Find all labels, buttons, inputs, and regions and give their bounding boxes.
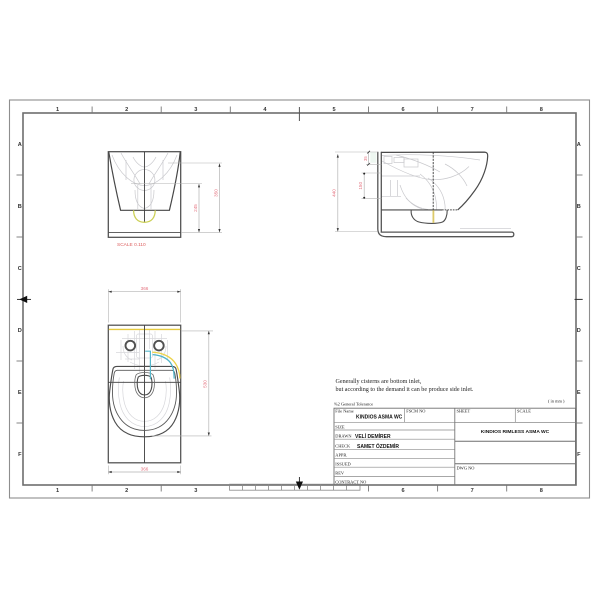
svg-text:but according to the demand i: but according to the demand it can be pr…: [336, 387, 474, 393]
svg-text:440: 440: [332, 189, 337, 197]
svg-text:7: 7: [471, 488, 474, 494]
svg-text:VELİ DEMİRER: VELİ DEMİRER: [355, 433, 391, 440]
svg-text:DWG NO: DWG NO: [457, 466, 475, 471]
svg-text:F: F: [18, 452, 22, 458]
svg-text:5: 5: [332, 107, 335, 113]
svg-text:366: 366: [141, 286, 149, 291]
svg-text:8: 8: [540, 488, 543, 494]
svg-text:C: C: [577, 266, 581, 272]
svg-text:( in mm ): ( in mm ): [548, 399, 565, 404]
svg-text:ISSUED: ISSUED: [335, 461, 350, 466]
svg-text:REV: REV: [335, 471, 345, 476]
svg-text:3: 3: [194, 107, 197, 113]
svg-text:B: B: [577, 204, 581, 210]
svg-text:%2 General Tolerance: %2 General Tolerance: [334, 402, 373, 407]
svg-text:SIZE: SIZE: [335, 424, 345, 429]
svg-text:SAMET ÖZDEMİR: SAMET ÖZDEMİR: [357, 443, 399, 450]
svg-text:B: B: [18, 204, 22, 210]
svg-text:SHEET: SHEET: [457, 409, 471, 414]
svg-text:D: D: [577, 328, 581, 334]
svg-text:SCALE 0.110: SCALE 0.110: [117, 242, 146, 248]
svg-text:CHECK: CHECK: [335, 444, 351, 449]
svg-text:E: E: [577, 390, 581, 396]
svg-text:E: E: [18, 390, 22, 396]
svg-text:2: 2: [125, 107, 128, 113]
svg-text:150: 150: [358, 182, 363, 190]
svg-text:FSCM NO: FSCM NO: [406, 409, 425, 414]
svg-text:APPR.: APPR.: [335, 452, 347, 457]
svg-text:245: 245: [193, 204, 198, 212]
svg-text:CONTRACT NO: CONTRACT NO: [335, 479, 366, 484]
svg-text:A: A: [577, 142, 581, 148]
svg-text:35: 35: [363, 156, 368, 161]
svg-text:530: 530: [203, 380, 208, 388]
svg-text:350: 350: [213, 189, 218, 197]
svg-text:8: 8: [540, 107, 543, 113]
svg-text:KINDIOS RIMLESS ASMA WC: KINDIOS RIMLESS ASMA WC: [481, 429, 550, 435]
svg-text:C: C: [18, 266, 22, 272]
svg-text:3: 3: [194, 488, 197, 494]
svg-text:2: 2: [125, 488, 128, 494]
svg-text:7: 7: [471, 107, 474, 113]
svg-text:F: F: [577, 452, 581, 458]
svg-text:6: 6: [402, 488, 405, 494]
svg-text:6: 6: [402, 107, 405, 113]
svg-text:1: 1: [56, 107, 59, 113]
svg-text:KINDIOS ASMA WC: KINDIOS ASMA WC: [356, 415, 403, 421]
svg-text:File Name: File Name: [335, 409, 353, 414]
svg-text:A: A: [18, 142, 22, 148]
svg-text:366: 366: [141, 467, 149, 472]
svg-text:DRAWN: DRAWN: [335, 433, 352, 438]
svg-text:Generally cisterns are bottom: Generally cisterns are bottom inlet,: [336, 379, 422, 385]
svg-text:SCALE: SCALE: [517, 409, 531, 414]
svg-text:D: D: [18, 328, 22, 334]
svg-text:1: 1: [56, 488, 59, 494]
